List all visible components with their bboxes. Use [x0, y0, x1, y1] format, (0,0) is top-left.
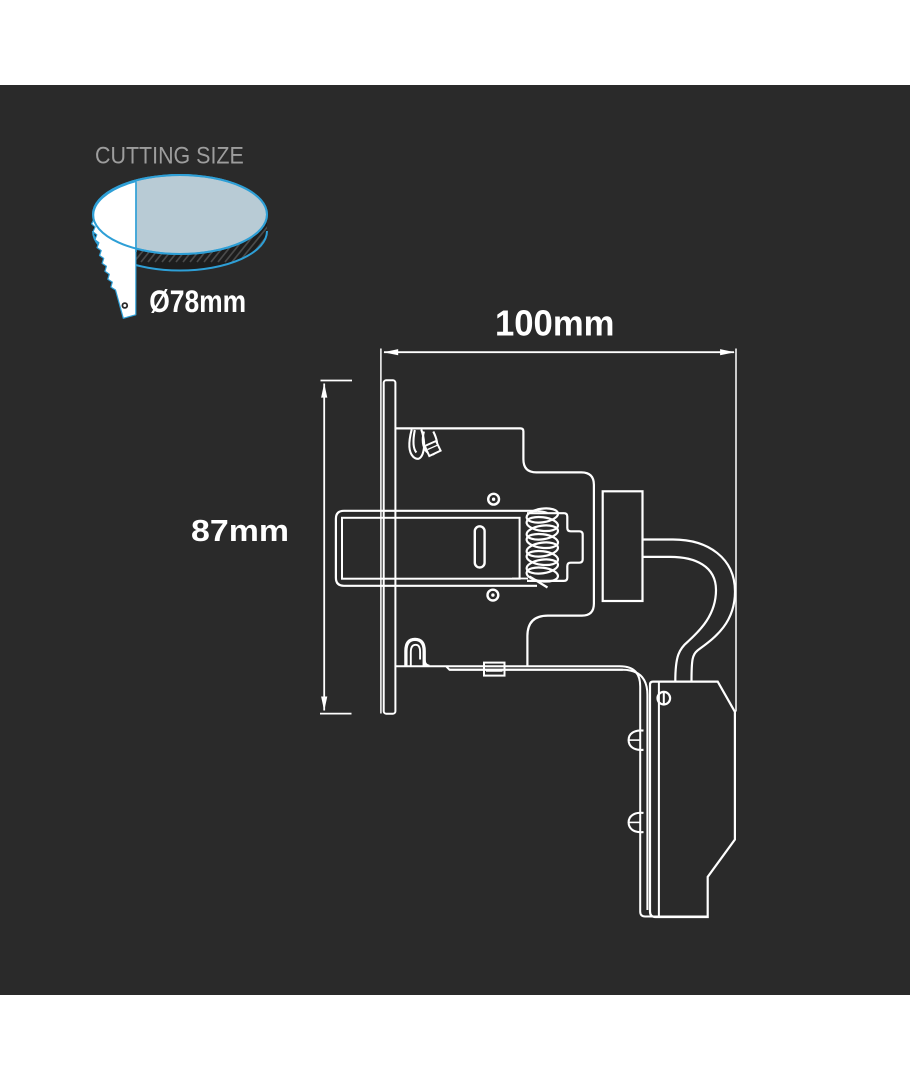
- svg-text:87mm: 87mm: [191, 514, 289, 548]
- svg-text:Ø78mm: Ø78mm: [149, 283, 246, 319]
- svg-text:100mm: 100mm: [495, 303, 615, 344]
- svg-text:CUTTING SIZE: CUTTING SIZE: [95, 143, 244, 170]
